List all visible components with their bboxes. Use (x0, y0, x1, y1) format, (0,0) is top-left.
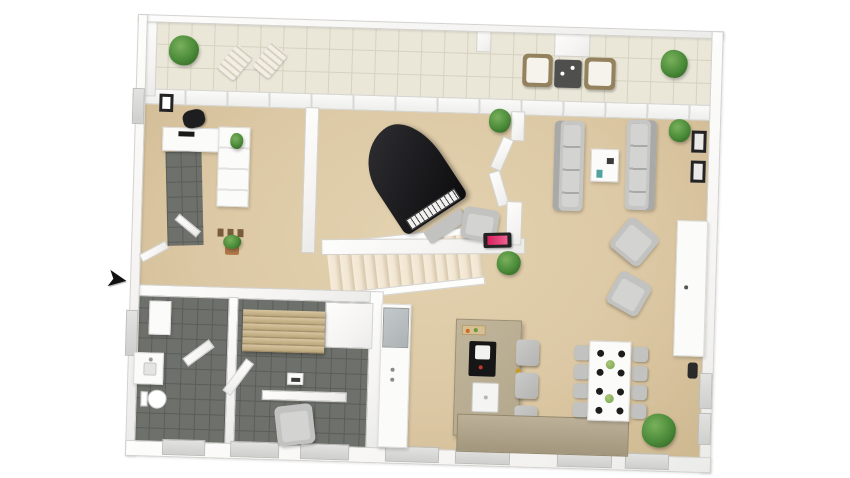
dining-chair (574, 345, 590, 360)
place-setting (597, 350, 604, 357)
lounge-armchair (274, 403, 316, 447)
wicker-armchair (522, 53, 553, 87)
wall-frames (690, 130, 708, 188)
place-setting (618, 350, 625, 357)
window (625, 453, 669, 470)
wall-sauna-corner (324, 302, 373, 349)
bar-stool (516, 339, 540, 366)
window (132, 88, 145, 124)
wall-frame (159, 94, 174, 112)
pan (475, 345, 490, 359)
sideboard (673, 220, 708, 357)
island-sink (471, 382, 499, 413)
balcony-side-table (554, 59, 582, 88)
window (125, 310, 138, 356)
place-setting (595, 407, 602, 414)
window (697, 413, 711, 445)
living-room-sofa (624, 120, 657, 211)
window (699, 373, 713, 409)
wicker-armchair (584, 57, 616, 90)
cutting-board (462, 325, 486, 336)
sauna-heater (287, 373, 303, 385)
dresser-item (178, 131, 194, 136)
dining-chair (632, 347, 648, 362)
wall-frame (690, 160, 706, 182)
place-setting (596, 369, 603, 376)
coffee-table (590, 149, 619, 183)
sink-basin (143, 362, 156, 375)
centerpieces (604, 342, 615, 422)
place-settings-left (595, 342, 604, 422)
dining-table (587, 341, 631, 422)
window (162, 439, 205, 456)
wall-fireplace (483, 232, 511, 248)
wall-frame (691, 130, 707, 152)
vanity-sink (133, 352, 164, 385)
heater-vent (291, 378, 300, 382)
place-setting (617, 388, 624, 395)
hall-dresser (162, 127, 223, 153)
window (230, 441, 279, 458)
fireplace-dot (495, 239, 498, 242)
entrance-arrow-icon: ➤ (104, 264, 130, 293)
dining-chair (631, 366, 647, 381)
centerpiece (605, 394, 614, 403)
toilet (140, 389, 167, 409)
dining-chair (630, 404, 646, 419)
floor-plan: ➤ (125, 14, 724, 473)
wall-doorway-upper (510, 111, 525, 141)
dining-chair (631, 385, 647, 400)
place-setting (616, 407, 623, 414)
toilet-bowl (147, 389, 167, 409)
wall-panel (687, 362, 697, 378)
table-book (596, 170, 602, 178)
place-settings-right (616, 342, 625, 422)
table-item (607, 158, 614, 164)
drain (484, 395, 488, 399)
bathroom-cabinet (148, 300, 171, 335)
food-item (466, 329, 470, 333)
bar-stool (515, 372, 539, 399)
place-setting (596, 388, 603, 395)
dining-chair (573, 383, 589, 398)
cooktop (468, 341, 496, 377)
sauna-bench (242, 309, 325, 353)
centerpiece (606, 360, 615, 369)
faucet (149, 357, 153, 361)
refrigerator (382, 307, 409, 348)
table-item (560, 72, 564, 76)
window (300, 443, 349, 460)
living-room-sofa (552, 120, 585, 211)
oven-knob (391, 368, 395, 372)
dining-chair (572, 402, 588, 417)
place-setting (617, 369, 624, 376)
window (385, 446, 439, 464)
burner-light (479, 365, 483, 369)
dining-chairs-right (630, 345, 648, 423)
dining-chair (573, 364, 589, 379)
sideboard-knob (684, 285, 688, 289)
table-item (571, 66, 575, 70)
food-item (474, 328, 478, 332)
